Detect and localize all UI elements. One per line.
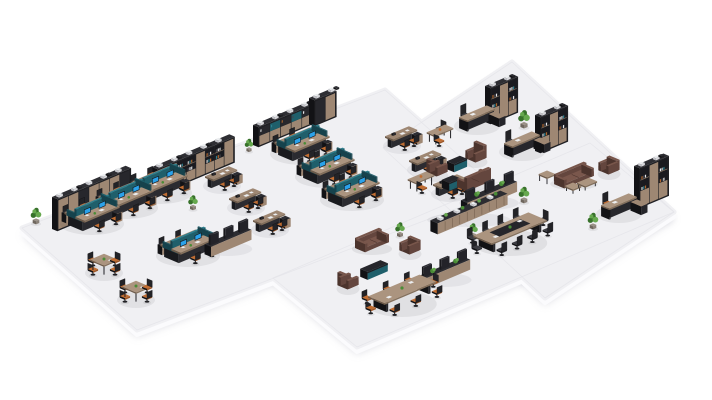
small-meeting-table	[117, 279, 155, 308]
office-floorplan-render	[0, 0, 712, 400]
potted-plant	[31, 208, 42, 226]
small-meeting-table	[85, 252, 123, 281]
office-render-stage	[0, 0, 712, 400]
